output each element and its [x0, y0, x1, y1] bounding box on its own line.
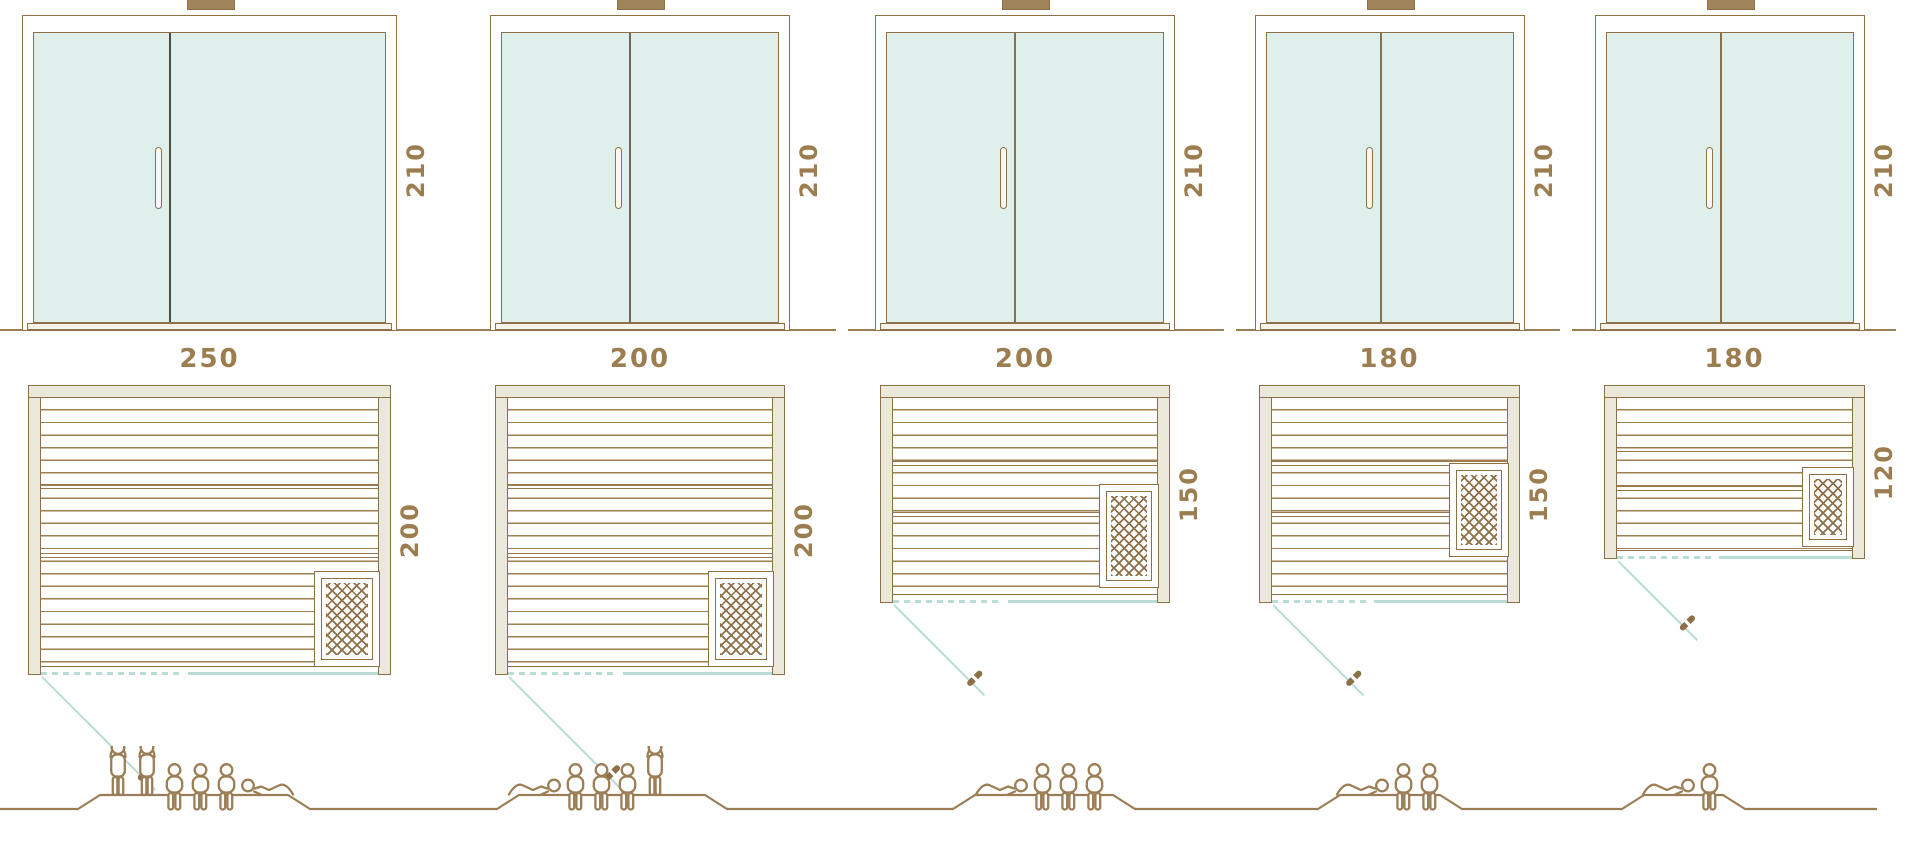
- heater-enclosure: [1802, 467, 1854, 547]
- fixed-glass-line: [1008, 600, 1157, 603]
- door-divider-line: [629, 33, 631, 322]
- plan-depth-label: 120: [1869, 385, 1899, 559]
- sauna-column-180x150: 210 180 150: [0, 0, 1920, 856]
- elevation-front-view: [490, 15, 790, 331]
- fixed-glass-line: [188, 672, 378, 675]
- ground-line: [384, 329, 836, 331]
- heater-enclosure: [314, 571, 380, 667]
- ground-line: [0, 329, 368, 331]
- capacity-group: [111, 746, 294, 810]
- plan-depth-label: 150: [1524, 385, 1554, 603]
- standing-person-icon: [648, 746, 663, 795]
- elevation-front-view: [1595, 15, 1865, 331]
- roof-vent-cap: [187, 0, 235, 10]
- wall-post-left: [28, 385, 41, 675]
- ground-profile-line: [0, 795, 1877, 809]
- floor-plan-top-view: [28, 385, 391, 675]
- lying-person-icon: [242, 780, 293, 795]
- glass-front-panel: [33, 32, 386, 323]
- floor-plan-top-view: [1259, 385, 1520, 603]
- door-opening-dashed-line: [893, 600, 1001, 603]
- door-opening-dashed-line: [41, 672, 179, 675]
- elevation-front-view: [1255, 15, 1525, 331]
- door-opening-dashed-line: [1272, 600, 1368, 603]
- glass-front-plan-line: [1617, 556, 1852, 559]
- back-wall: [28, 385, 391, 398]
- standing-person-icon: [111, 746, 126, 795]
- elevation-front-view: [22, 15, 397, 331]
- seated-person-icon: [1087, 764, 1102, 809]
- seated-person-icon: [1702, 764, 1717, 809]
- heater-icon: [321, 578, 373, 660]
- sauna-column-200x200: 210 200 200: [0, 0, 1920, 856]
- door-handle-icon: [615, 147, 622, 209]
- bench-slats: [1271, 397, 1508, 595]
- roof-vent-cap: [1707, 0, 1755, 10]
- lying-person-icon: [1337, 780, 1388, 795]
- door-handle-icon: [1000, 147, 1007, 209]
- back-wall: [880, 385, 1170, 398]
- door-handle-icon: [966, 669, 983, 686]
- heater-enclosure: [1449, 463, 1509, 557]
- seated-person-icon: [1035, 764, 1050, 809]
- door-divider-line: [1720, 33, 1722, 322]
- bench-slats: [1616, 397, 1853, 551]
- ground-line: [1236, 329, 1560, 331]
- wall-post-right: [1157, 385, 1170, 603]
- bench-edge-line: [1272, 512, 1507, 517]
- bench-edge-line: [41, 553, 378, 558]
- door-handle-icon: [1706, 147, 1713, 209]
- plan-depth-label: 150: [1174, 385, 1204, 603]
- floor-plan-top-view: [1604, 385, 1865, 559]
- glass-front-panel: [501, 32, 779, 323]
- bench-edge-line: [508, 553, 772, 558]
- glass-front-panel: [1606, 32, 1854, 323]
- door-swing-line: [893, 604, 985, 696]
- door-opening-dashed-line: [508, 672, 616, 675]
- bench-edge-line: [41, 484, 378, 489]
- seated-person-icon: [193, 764, 208, 809]
- seated-person-icon: [568, 764, 583, 809]
- lying-person-icon: [509, 780, 560, 795]
- wall-post-left: [1259, 385, 1272, 603]
- seated-person-icon: [1061, 764, 1076, 809]
- capacity-group: [1337, 764, 1437, 809]
- standing-person-icon: [140, 746, 155, 795]
- wall-post-left: [1604, 385, 1617, 559]
- glass-front-panel: [1266, 32, 1514, 323]
- height-dimension-label: 210: [401, 15, 431, 325]
- wall-post-right: [1507, 385, 1520, 603]
- seated-person-icon: [594, 764, 609, 809]
- heater-icon: [1106, 491, 1152, 581]
- roof-vent-cap: [1367, 0, 1415, 10]
- sauna-column-250x200: 210 250 200: [0, 0, 1920, 856]
- door-swing-line: [1272, 604, 1364, 696]
- sauna-column-200x150: 210 200 150: [0, 0, 1920, 856]
- bench-edge-line: [1272, 461, 1507, 466]
- door-divider-line: [169, 33, 171, 322]
- plan-width-label: 180: [1604, 346, 1865, 372]
- plan-depth-label: 200: [395, 385, 425, 675]
- capacity-group: [976, 764, 1102, 809]
- ground-line: [1572, 329, 1896, 331]
- door-handle-icon: [155, 147, 162, 209]
- heater-enclosure: [708, 571, 774, 667]
- door-opening-dashed-line: [1617, 556, 1713, 559]
- glass-front-panel: [886, 32, 1164, 323]
- plan-width-label: 200: [880, 346, 1170, 372]
- bench-slats: [892, 397, 1158, 595]
- plan-width-label: 180: [1259, 346, 1520, 372]
- plan-depth-label: 200: [789, 385, 819, 675]
- bench-edge-line: [1617, 447, 1852, 452]
- glass-front-plan-line: [1272, 600, 1507, 603]
- wall-post-right: [1852, 385, 1865, 559]
- height-dimension-label: 210: [1179, 15, 1209, 325]
- back-wall: [495, 385, 785, 398]
- lying-person-icon: [976, 780, 1027, 795]
- bench-edge-line: [893, 461, 1157, 466]
- seated-person-icon: [167, 764, 182, 809]
- fixed-glass-line: [1719, 556, 1852, 559]
- height-dimension-label: 210: [1869, 15, 1899, 325]
- glass-front-plan-line: [41, 672, 378, 675]
- wall-post-right: [772, 385, 785, 675]
- heater-enclosure: [1099, 484, 1159, 588]
- capacity-group: [509, 746, 663, 810]
- glass-front-plan-line: [893, 600, 1157, 603]
- heater-icon: [1456, 470, 1502, 550]
- ground-line: [848, 329, 1224, 331]
- plan-width-label: 200: [495, 346, 785, 372]
- bench-edge-line: [1617, 486, 1852, 491]
- sauna-dimension-diagram: 210 250 200: [0, 0, 1920, 856]
- bench-edge-line: [893, 512, 1157, 517]
- fixed-glass-line: [623, 672, 772, 675]
- heater-icon: [715, 578, 767, 660]
- sauna-column-180x120: 210 180 120: [0, 0, 1920, 856]
- bench-edge-line: [508, 484, 772, 489]
- floor-plan-top-view: [880, 385, 1170, 603]
- seated-person-icon: [1422, 764, 1437, 809]
- seated-person-icon: [1396, 764, 1411, 809]
- seated-person-icon: [219, 764, 234, 809]
- wall-post-left: [880, 385, 893, 603]
- glass-front-plan-line: [508, 672, 772, 675]
- door-handle-icon: [1679, 614, 1696, 631]
- door-swing-line: [1617, 560, 1698, 641]
- door-handle-icon: [1345, 669, 1362, 686]
- floor-plan-top-view: [495, 385, 785, 675]
- back-wall: [1604, 385, 1865, 398]
- capacity-group: [1643, 764, 1717, 809]
- door-divider-line: [1380, 33, 1382, 322]
- wall-post-left: [495, 385, 508, 675]
- bench-slats: [40, 397, 379, 667]
- height-dimension-label: 210: [1529, 15, 1559, 325]
- roof-vent-cap: [617, 0, 665, 10]
- back-wall: [1259, 385, 1520, 398]
- seated-person-icon: [620, 764, 635, 809]
- door-divider-line: [1014, 33, 1016, 322]
- roof-vent-cap: [1002, 0, 1050, 10]
- plan-width-label: 250: [28, 346, 391, 372]
- fixed-glass-line: [1374, 600, 1507, 603]
- lying-person-icon: [1643, 780, 1694, 795]
- wall-post-right: [378, 385, 391, 675]
- door-handle-icon: [1366, 147, 1373, 209]
- capacity-row: [0, 746, 1920, 820]
- elevation-front-view: [875, 15, 1175, 331]
- heater-icon: [1809, 474, 1847, 540]
- bench-slats: [507, 397, 773, 667]
- height-dimension-label: 210: [794, 15, 824, 325]
